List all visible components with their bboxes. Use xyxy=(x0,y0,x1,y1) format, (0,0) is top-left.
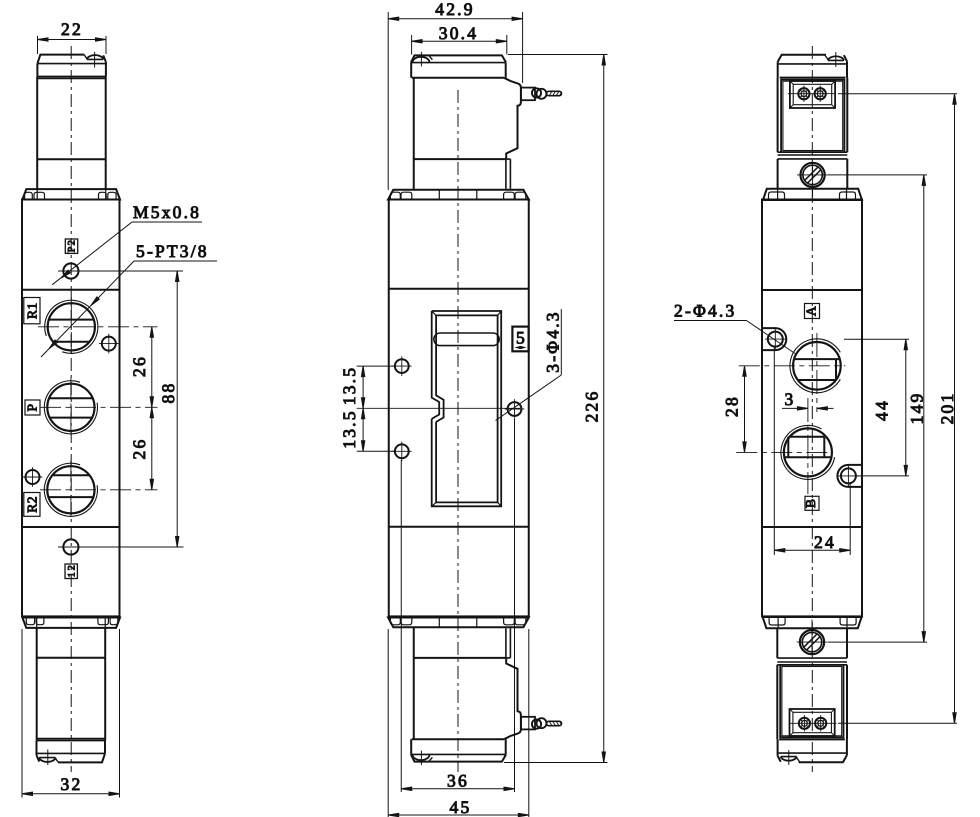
svg-text:88: 88 xyxy=(158,382,178,404)
svg-text:A: A xyxy=(804,306,819,316)
svg-text:32: 32 xyxy=(61,774,83,794)
svg-text:226: 226 xyxy=(582,390,602,423)
svg-text:12: 12 xyxy=(66,565,77,577)
svg-text:30.4: 30.4 xyxy=(439,23,478,43)
svg-text:3-Φ4.3: 3-Φ4.3 xyxy=(543,310,563,372)
svg-text:M5x0.8: M5x0.8 xyxy=(133,202,201,222)
svg-text:24: 24 xyxy=(814,532,836,552)
svg-text:5-PT3/8: 5-PT3/8 xyxy=(136,241,209,261)
svg-text:26: 26 xyxy=(129,438,149,460)
svg-text:R1: R1 xyxy=(25,302,40,319)
svg-text:5: 5 xyxy=(516,328,525,348)
svg-text:26: 26 xyxy=(129,355,149,377)
svg-text:42.9: 42.9 xyxy=(435,0,474,19)
svg-text:B: B xyxy=(803,499,818,509)
svg-text:2-Φ4.3: 2-Φ4.3 xyxy=(674,301,736,321)
svg-text:P: P xyxy=(25,403,40,411)
svg-text:P2: P2 xyxy=(67,240,78,252)
svg-text:13.5: 13.5 xyxy=(339,409,359,448)
svg-text:28: 28 xyxy=(722,395,742,417)
svg-text:36: 36 xyxy=(447,771,469,791)
svg-text:3: 3 xyxy=(785,389,794,409)
svg-text:45: 45 xyxy=(450,797,472,817)
svg-text:13.5: 13.5 xyxy=(339,366,359,405)
svg-text:22: 22 xyxy=(61,19,83,39)
svg-text:R2: R2 xyxy=(25,496,40,513)
svg-text:44: 44 xyxy=(872,399,892,421)
